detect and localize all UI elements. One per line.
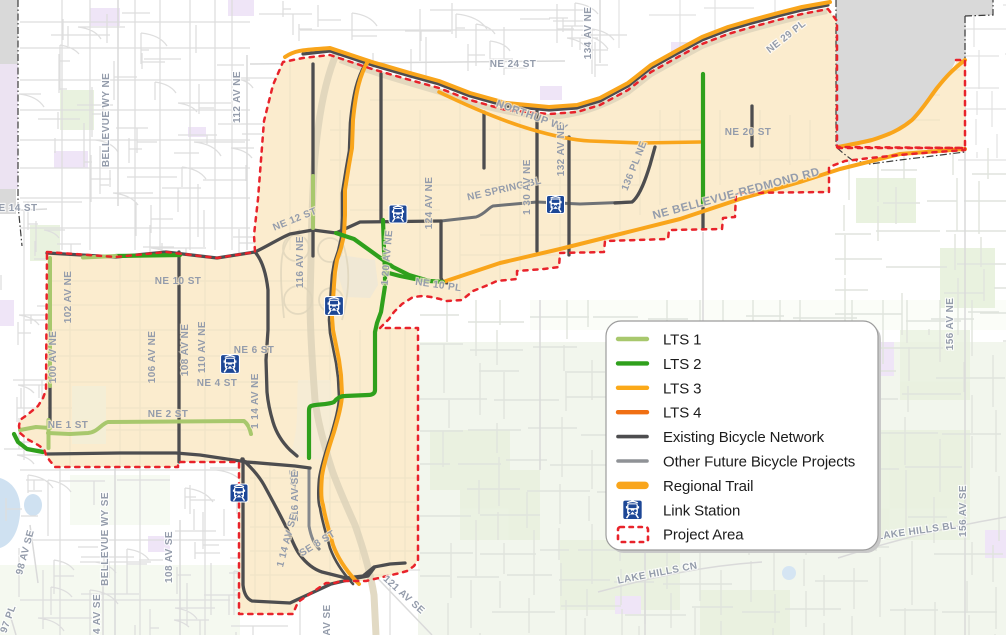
svg-text:NE 6 ST: NE 6 ST [234, 345, 275, 356]
svg-text:100 AV NE: 100 AV NE [48, 331, 59, 384]
svg-text:106 AV NE: 106 AV NE [147, 331, 158, 384]
svg-text:LTS 1: LTS 1 [663, 332, 701, 349]
svg-text:108 AV NE: 108 AV NE [180, 324, 191, 377]
svg-text:116 AV NE: 116 AV NE [295, 236, 306, 288]
svg-text:NE 10 ST: NE 10 ST [155, 276, 202, 287]
svg-text:LTS 3: LTS 3 [663, 380, 701, 397]
svg-text:156 AV SE: 156 AV SE [958, 485, 969, 537]
svg-text:1 14 AV NE: 1 14 AV NE [250, 373, 261, 429]
svg-text:4 AV SE: 4 AV SE [92, 594, 103, 634]
svg-text:Other Future Bicycle Projects: Other Future Bicycle Projects [663, 454, 855, 471]
svg-text:124 AV NE: 124 AV NE [424, 177, 435, 230]
svg-text:Project Area: Project Area [663, 527, 744, 544]
svg-text:110 AV NE: 110 AV NE [197, 321, 208, 373]
svg-text:156 AV NE: 156 AV NE [945, 298, 956, 351]
svg-text:BELLEVUE WY SE: BELLEVUE WY SE [100, 492, 111, 586]
svg-text:NE 24 ST: NE 24 ST [490, 59, 537, 70]
svg-text:BELLEVUE WY NE: BELLEVUE WY NE [101, 73, 112, 167]
svg-text:NE 1 ST: NE 1 ST [48, 420, 89, 431]
svg-text:102 AV NE: 102 AV NE [63, 271, 74, 324]
svg-text:NE 20 ST: NE 20 ST [725, 127, 772, 138]
svg-text:Regional Trail: Regional Trail [663, 478, 753, 495]
svg-text:108 AV SE: 108 AV SE [164, 531, 175, 583]
svg-text:132 AV NE: 132 AV NE [556, 124, 567, 177]
svg-text:NE 4 ST: NE 4 ST [197, 378, 238, 389]
svg-text:Existing Bicycle Network: Existing Bicycle Network [663, 429, 825, 446]
svg-text:134 AV NE: 134 AV NE [583, 7, 594, 60]
svg-text:1 30 AV NE: 1 30 AV NE [522, 159, 533, 215]
svg-text:LTS 2: LTS 2 [663, 356, 701, 373]
svg-text:Link Station: Link Station [663, 502, 740, 519]
svg-text:AV SE: AV SE [322, 604, 333, 635]
svg-text:LTS 4: LTS 4 [663, 405, 701, 422]
svg-text:NE 2 ST: NE 2 ST [148, 409, 189, 420]
svg-text:112 AV NE: 112 AV NE [232, 71, 243, 123]
svg-text:E 14 ST: E 14 ST [0, 203, 37, 214]
